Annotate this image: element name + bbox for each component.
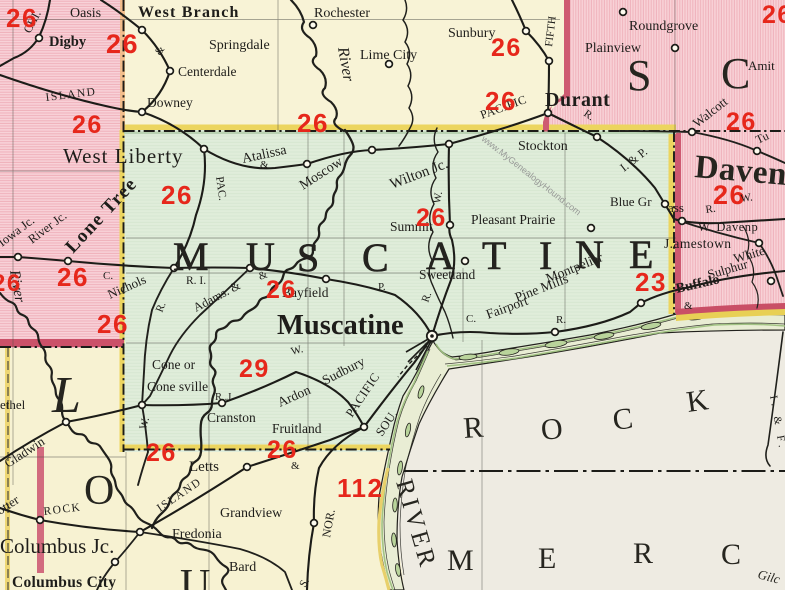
svg-text:26: 26 <box>762 1 785 29</box>
svg-text:C.: C. <box>103 270 113 282</box>
svg-text:Stockton: Stockton <box>518 139 568 154</box>
svg-text:Amit: Amit <box>748 58 775 73</box>
svg-text:T: T <box>482 233 506 278</box>
svg-text:Rochester: Rochester <box>314 6 370 21</box>
svg-text:P.: P. <box>378 281 386 293</box>
svg-text:R: R <box>633 537 653 570</box>
svg-text:29: 29 <box>239 355 270 383</box>
svg-text:ass: ass <box>668 200 684 215</box>
svg-text:Letts: Letts <box>189 459 219 475</box>
svg-text:Muscatine: Muscatine <box>277 310 404 341</box>
svg-text:W. Davenp: W. Davenp <box>698 220 758 234</box>
svg-text:26: 26 <box>106 29 139 59</box>
svg-text:R.: R. <box>705 203 717 216</box>
svg-text:L: L <box>51 367 81 424</box>
svg-text:Downey: Downey <box>147 95 193 110</box>
svg-text:26: 26 <box>146 439 177 467</box>
svg-text:Roundgrove: Roundgrove <box>629 19 698 34</box>
svg-text:W.: W. <box>431 190 445 204</box>
svg-text:&: & <box>291 460 300 472</box>
svg-text:26: 26 <box>161 180 193 210</box>
svg-text:26: 26 <box>266 276 297 304</box>
svg-text:J.amestown: J.amestown <box>664 236 731 251</box>
svg-text:26: 26 <box>297 108 329 138</box>
svg-text:M: M <box>447 544 474 577</box>
svg-text:Lime City: Lime City <box>360 48 417 63</box>
svg-text:C: C <box>362 235 389 280</box>
svg-text:S: S <box>627 51 651 100</box>
svg-text:A: A <box>426 233 455 278</box>
svg-text:Fredonia: Fredonia <box>172 527 223 542</box>
svg-text:&: & <box>260 159 269 171</box>
svg-text:Springdale: Springdale <box>209 38 270 53</box>
svg-text:R.: R. <box>556 314 566 326</box>
svg-text:West Liberty: West Liberty <box>63 144 184 168</box>
svg-text:112: 112 <box>337 473 383 503</box>
svg-text:R: R <box>462 411 484 445</box>
svg-text:26: 26 <box>72 111 103 139</box>
svg-text:26: 26 <box>6 3 38 33</box>
svg-text:26: 26 <box>97 309 129 339</box>
svg-text:N: N <box>575 232 604 277</box>
svg-text:E: E <box>538 542 556 575</box>
svg-text:26: 26 <box>485 86 517 116</box>
svg-text:R .J.: R .J. <box>215 392 234 403</box>
svg-text:Pleasant Prairie: Pleasant Prairie <box>471 212 555 227</box>
svg-text:C.: C. <box>466 313 476 325</box>
svg-text:O: O <box>539 412 564 447</box>
svg-text:C: C <box>721 49 750 98</box>
svg-text:Cone sville: Cone sville <box>147 379 208 394</box>
svg-text:Columbus City: Columbus City <box>12 574 116 590</box>
svg-text:M: M <box>173 234 209 279</box>
svg-text:Cranston: Cranston <box>207 410 256 425</box>
svg-text:S: S <box>297 235 319 280</box>
svg-text:26: 26 <box>416 204 447 232</box>
svg-text:West Branch: West Branch <box>138 4 240 21</box>
svg-text:Sunbury: Sunbury <box>448 26 495 41</box>
svg-text:E: E <box>629 232 653 277</box>
svg-text:Centerdale: Centerdale <box>178 64 236 79</box>
svg-text:26: 26 <box>726 108 757 136</box>
svg-text:26: 26 <box>0 270 22 297</box>
svg-text:C: C <box>721 538 741 571</box>
svg-text:Oasis: Oasis <box>70 6 101 21</box>
svg-text:W.: W. <box>740 191 754 205</box>
svg-text:I: I <box>539 233 552 278</box>
svg-text:U: U <box>246 234 275 279</box>
svg-text:26: 26 <box>57 262 89 292</box>
svg-text:U: U <box>180 562 210 590</box>
svg-text:&: & <box>684 300 693 312</box>
svg-text:ethel: ethel <box>0 397 26 412</box>
svg-text:O: O <box>84 468 114 514</box>
svg-text:Digby: Digby <box>49 34 87 50</box>
svg-text:Columbus Jc.: Columbus Jc. <box>0 534 114 558</box>
svg-text:Cone or: Cone or <box>152 357 196 372</box>
svg-text:Blue Gr: Blue Gr <box>610 194 652 209</box>
svg-text:Bard: Bard <box>229 560 256 575</box>
svg-text:Fruitland: Fruitland <box>272 421 322 436</box>
svg-text:26: 26 <box>491 34 522 62</box>
svg-text:C: C <box>611 402 635 437</box>
svg-text:Durant: Durant <box>545 89 610 111</box>
svg-text:Grandview: Grandview <box>220 506 283 521</box>
